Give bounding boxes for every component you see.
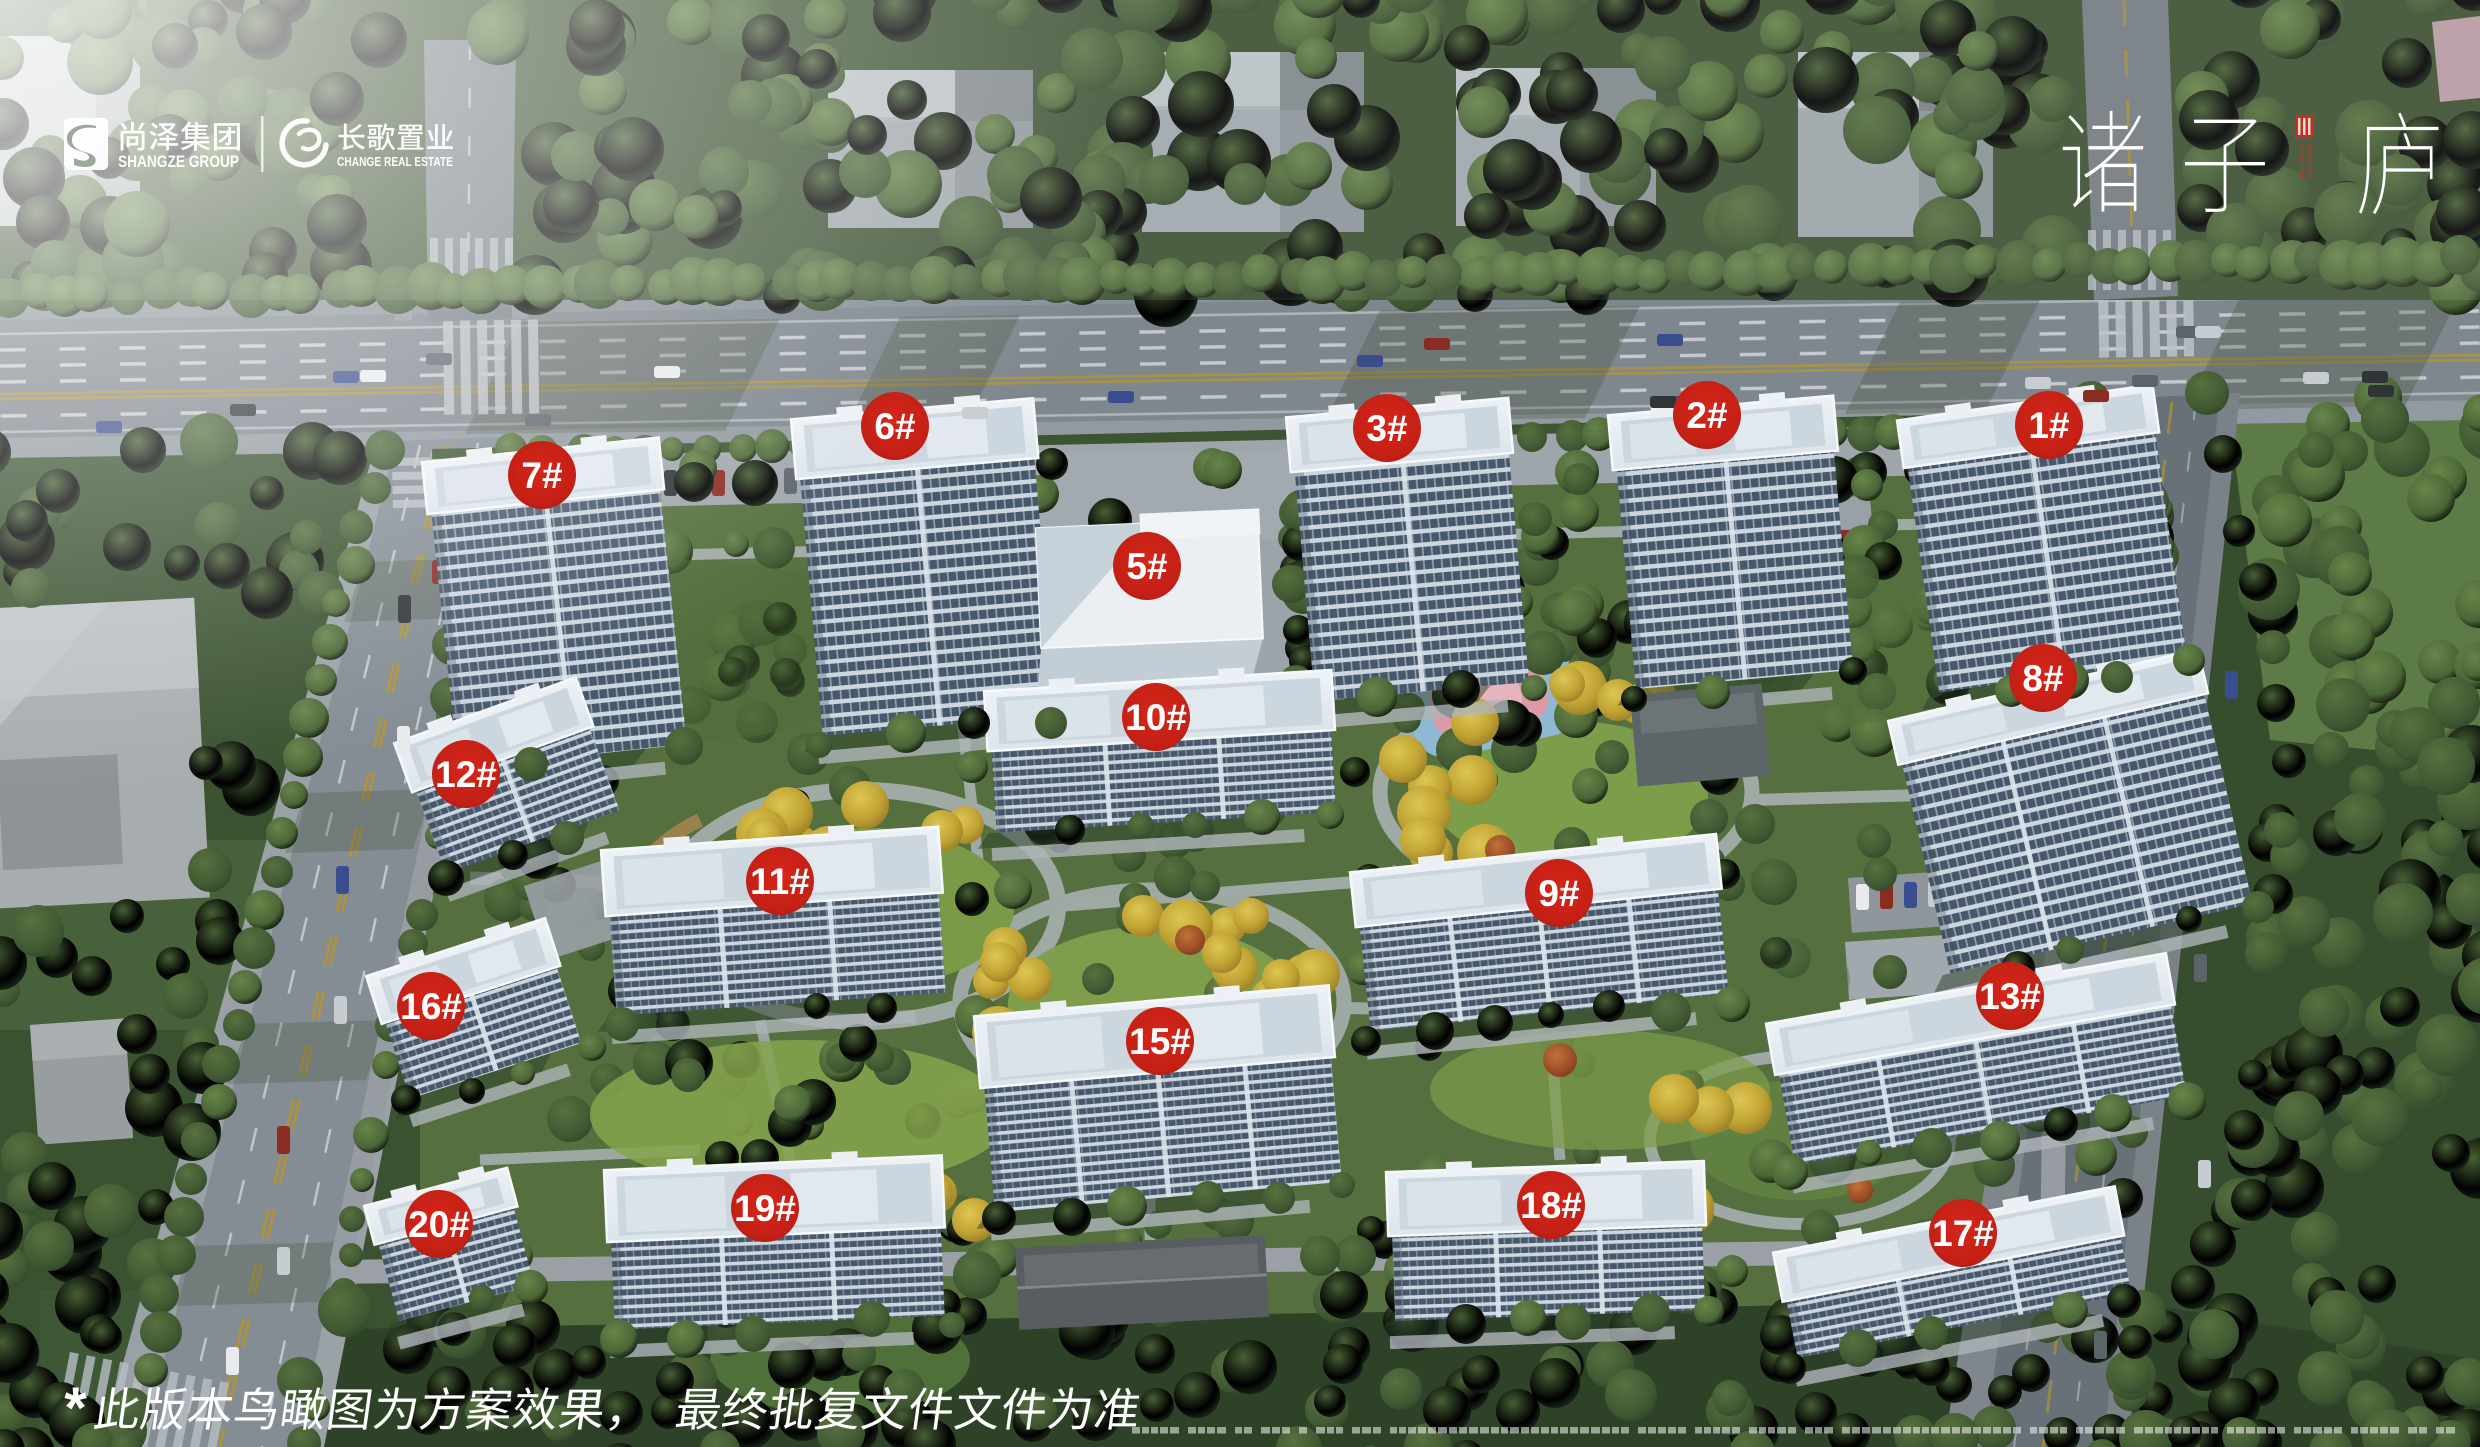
svg-text:8#: 8#	[2022, 658, 2063, 699]
svg-text:SCHOLARS: SCHOLARS	[2298, 144, 2304, 180]
svg-text:9#: 9#	[1538, 873, 1579, 914]
svg-text:2#: 2#	[1686, 395, 1727, 436]
svg-text:3#: 3#	[1366, 408, 1407, 449]
svg-text:*: *	[62, 1376, 87, 1441]
svg-text:15#: 15#	[1129, 1021, 1191, 1062]
svg-text:11#: 11#	[750, 861, 810, 902]
svg-text:SHANGZE GROUP: SHANGZE GROUP	[118, 152, 239, 171]
svg-text:6#: 6#	[874, 406, 915, 447]
svg-text:18#: 18#	[1520, 1185, 1582, 1226]
svg-text:13#: 13#	[1979, 976, 2041, 1017]
svg-text:10#: 10#	[1125, 697, 1187, 738]
svg-text:16#: 16#	[400, 986, 462, 1027]
svg-text:CHANGE REAL ESTATE: CHANGE REAL ESTATE	[337, 155, 453, 169]
svg-text:12#: 12#	[435, 754, 497, 795]
svg-text:5#: 5#	[1126, 546, 1167, 587]
svg-text:17#: 17#	[1932, 1213, 1994, 1254]
svg-text:1#: 1#	[2028, 405, 2069, 446]
svg-text:20#: 20#	[408, 1204, 470, 1245]
svg-text:19#: 19#	[734, 1188, 796, 1229]
svg-text:7#: 7#	[521, 455, 562, 496]
svg-text:MANSIONS: MANSIONS	[2306, 144, 2312, 179]
